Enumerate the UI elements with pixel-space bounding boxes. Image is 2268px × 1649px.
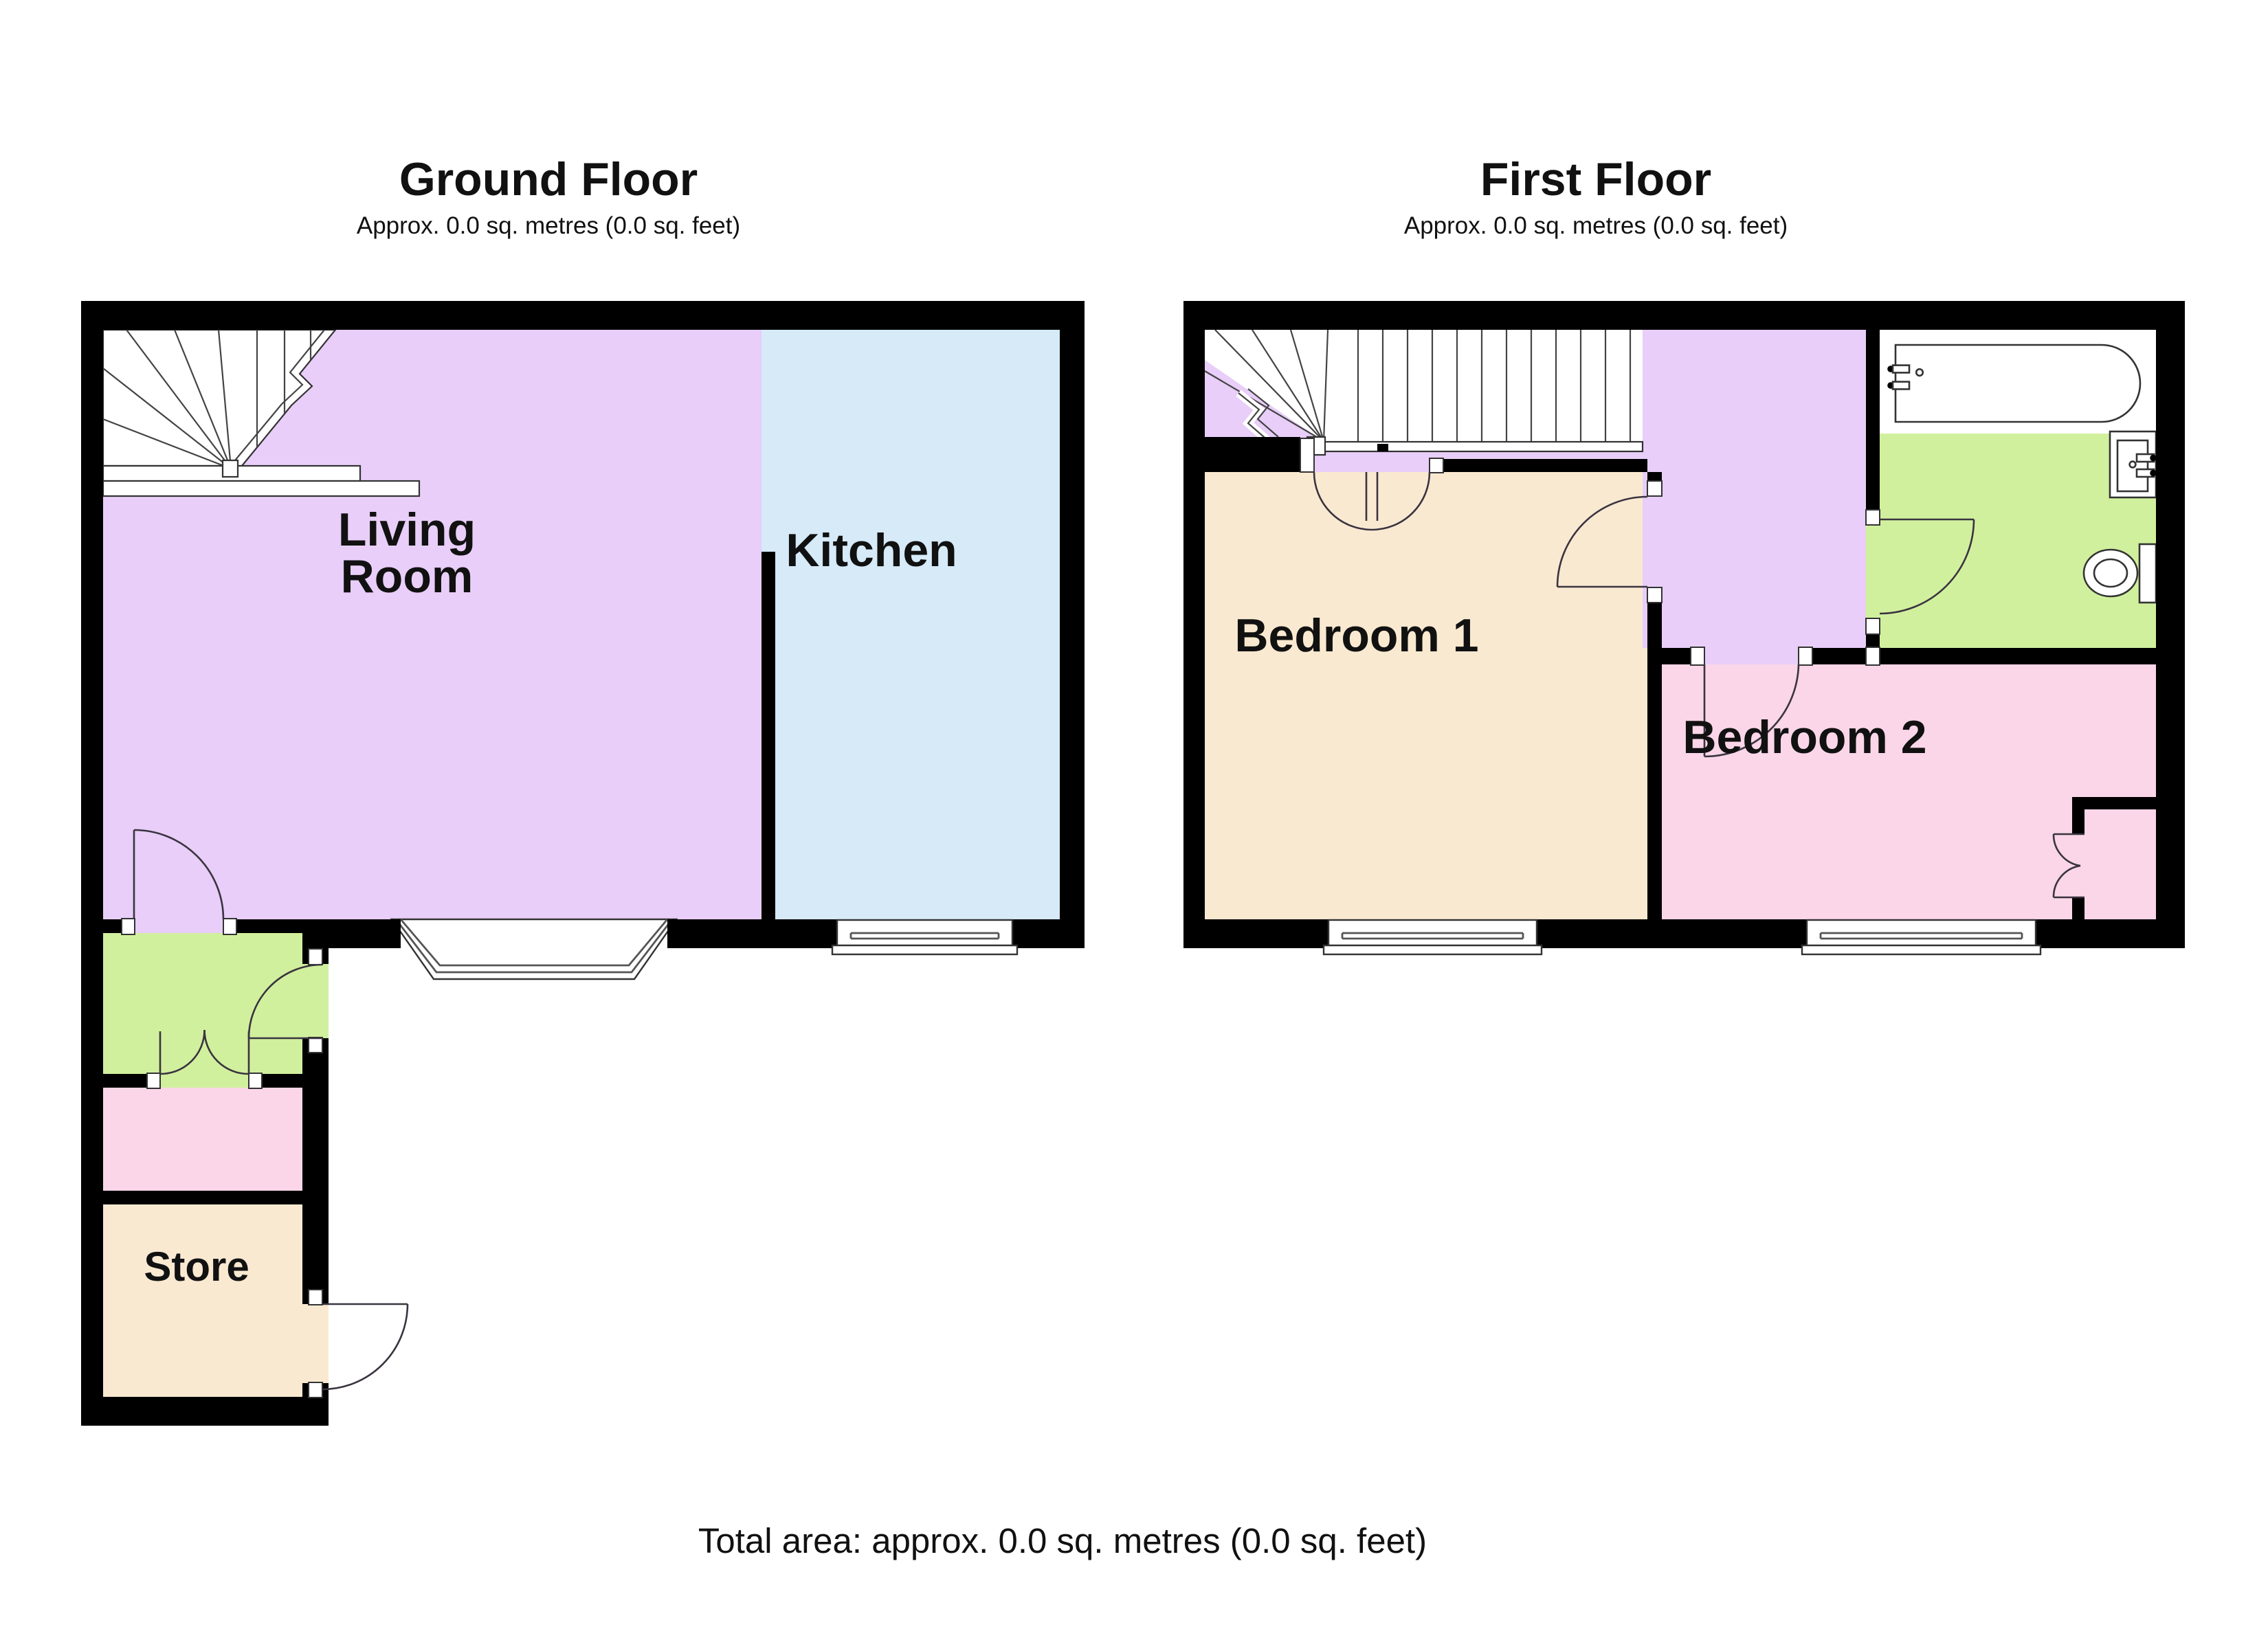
bathroom-door-opening — [1866, 524, 1880, 618]
bathtub — [1895, 345, 2140, 422]
bedroom1-door-opening — [1647, 496, 1662, 587]
bedroom1-label: Bedroom 1 — [1234, 609, 1478, 662]
living-room-label: Living — [338, 504, 476, 556]
ground-floor-title: Ground Floor — [399, 153, 698, 205]
first-floor-subtitle: Approx. 0.0 sq. metres (0.0 sq. feet) — [1404, 212, 1788, 239]
stair-newel-post — [223, 460, 238, 477]
stair-handrail-end — [1377, 444, 1388, 451]
first-floor-title: First Floor — [1480, 153, 1711, 205]
bedroom1-floor — [1205, 472, 1647, 919]
toilet-bowl-inner — [2094, 559, 2127, 587]
bath-drain-icon — [1916, 369, 1923, 376]
sink-tap-icon — [2150, 470, 2157, 477]
hall-double-door-opening — [160, 1074, 249, 1088]
landing-floor — [1643, 330, 1866, 648]
store-floor — [103, 1204, 302, 1397]
kitchen-partition-wall — [761, 552, 775, 919]
first-floor-stairs — [1205, 330, 1643, 455]
ground-floor-plan: Ground Floor Approx. 0.0 sq. metres (0.0… — [81, 153, 1085, 1426]
stair-side-wall — [1205, 437, 1300, 459]
bath-tap-icon — [1893, 366, 1909, 373]
bath-tap-icon — [1893, 382, 1909, 390]
kitchen-label: Kitchen — [786, 524, 957, 576]
bedroom2-window — [1802, 920, 2041, 954]
bedroom1-window — [1324, 920, 1542, 954]
bedroom1-double-door-opening — [1314, 459, 1430, 472]
stair-top-edge — [1303, 442, 1643, 451]
bedroom2-label: Bedroom 2 — [1682, 711, 1926, 763]
floorplan-canvas: Ground Floor Approx. 0.0 sq. metres (0.0… — [0, 0, 2268, 1649]
first-floor-plan: First Floor Approx. 0.0 sq. metres (0.0 … — [1183, 153, 2185, 954]
toilet-cistern — [2139, 544, 2156, 603]
living-room-door-opening — [134, 919, 223, 933]
store-label: Store — [144, 1244, 249, 1290]
sink-drain-icon — [2130, 462, 2136, 468]
porch-floor — [103, 1088, 302, 1191]
kitchen-floor — [761, 330, 1060, 919]
store-door-opening — [302, 1304, 329, 1383]
ground-floor-subtitle: Approx. 0.0 sq. metres (0.0 sq. feet) — [357, 212, 740, 239]
sink-tap-icon — [2150, 455, 2157, 462]
closet-wall — [2072, 797, 2156, 809]
total-area-text: Total area: approx. 0.0 sq. metres (0.0 … — [698, 1521, 1427, 1560]
living-room-label: Room — [341, 550, 474, 603]
bathroom-wall — [1866, 330, 1880, 511]
stair-step-strip — [103, 481, 419, 496]
hall-ext-door-opening — [302, 964, 329, 1038]
store-exterior-door — [322, 1304, 408, 1389]
hall-floor — [103, 933, 302, 1074]
bay-window — [392, 919, 676, 979]
bedroom-divider-wall — [1647, 603, 1662, 919]
kitchen-window — [832, 920, 1017, 954]
bedroom2-door-opening — [1704, 648, 1799, 664]
